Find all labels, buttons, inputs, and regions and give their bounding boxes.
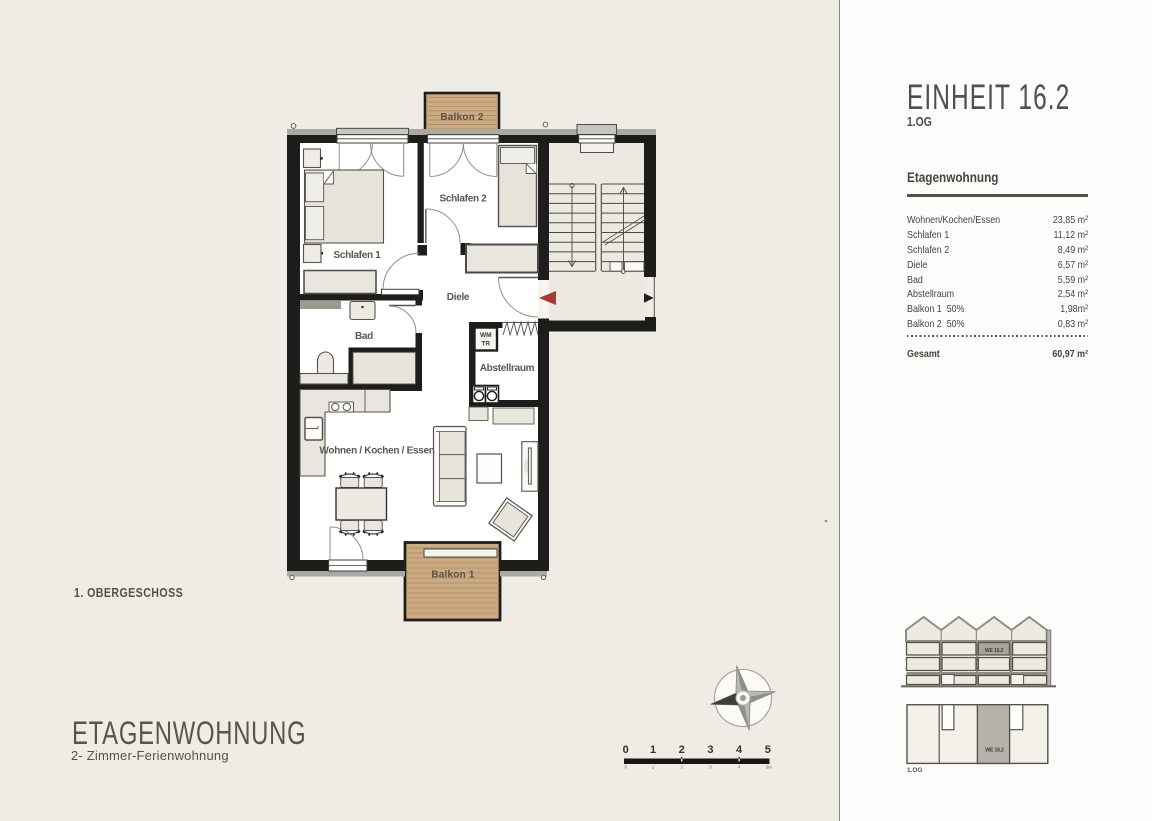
- svg-text:5m: 5m: [766, 765, 773, 770]
- svg-text:Abstellraum: Abstellraum: [480, 363, 535, 374]
- svg-text:Balkon 1: Balkon 1: [431, 570, 475, 581]
- svg-text:1: 1: [652, 765, 655, 770]
- svg-text:Schlafen 1: Schlafen 1: [333, 250, 381, 261]
- svg-text:3: 3: [709, 765, 712, 770]
- svg-text:2: 2: [679, 744, 685, 756]
- svg-text:4: 4: [736, 744, 743, 756]
- svg-text:Bad: Bad: [355, 331, 373, 342]
- svg-text:0: 0: [623, 744, 629, 756]
- svg-text:Balkon 2: Balkon 2: [440, 112, 484, 123]
- svg-text:1: 1: [650, 744, 656, 756]
- svg-text:WM: WM: [480, 332, 492, 339]
- svg-text:Wohnen / Kochen / Essen: Wohnen / Kochen / Essen: [319, 446, 434, 457]
- svg-text:4: 4: [738, 765, 741, 770]
- svg-text:TR: TR: [481, 340, 490, 347]
- svg-text:3: 3: [707, 744, 713, 756]
- svg-text:1.OG: 1.OG: [907, 767, 923, 774]
- svg-text:Schlafen 2: Schlafen 2: [439, 194, 487, 205]
- svg-text:0: 0: [624, 765, 627, 770]
- svg-text:WE 16.2: WE 16.2: [985, 748, 1004, 754]
- svg-text:5: 5: [765, 744, 771, 756]
- svg-text:2: 2: [680, 765, 683, 770]
- svg-text:WE 16.2: WE 16.2: [985, 648, 1004, 654]
- svg-text:Diele: Diele: [447, 292, 470, 303]
